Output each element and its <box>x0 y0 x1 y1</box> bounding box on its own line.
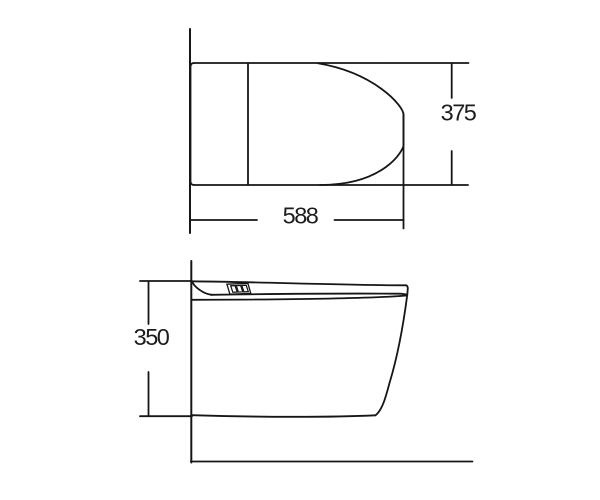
svg-text:588: 588 <box>283 203 319 229</box>
svg-text:375: 375 <box>441 100 477 126</box>
svg-text:350: 350 <box>134 324 170 350</box>
